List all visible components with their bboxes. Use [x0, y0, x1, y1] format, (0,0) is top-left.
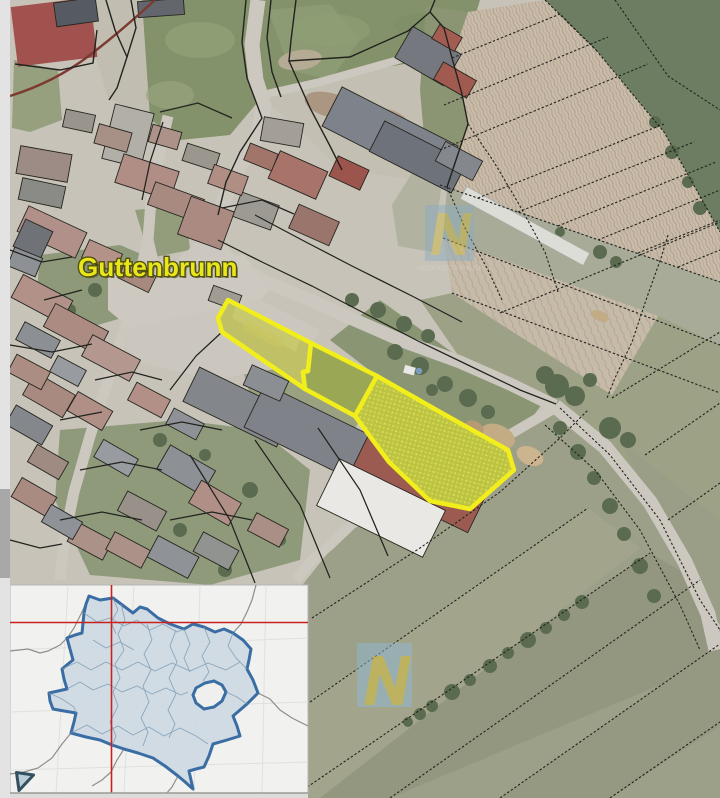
svg-text:NIEDERÖSTERREICH: NIEDERÖSTERREICH	[416, 264, 483, 272]
svg-text:Guttenbrunn: Guttenbrunn	[78, 252, 238, 282]
